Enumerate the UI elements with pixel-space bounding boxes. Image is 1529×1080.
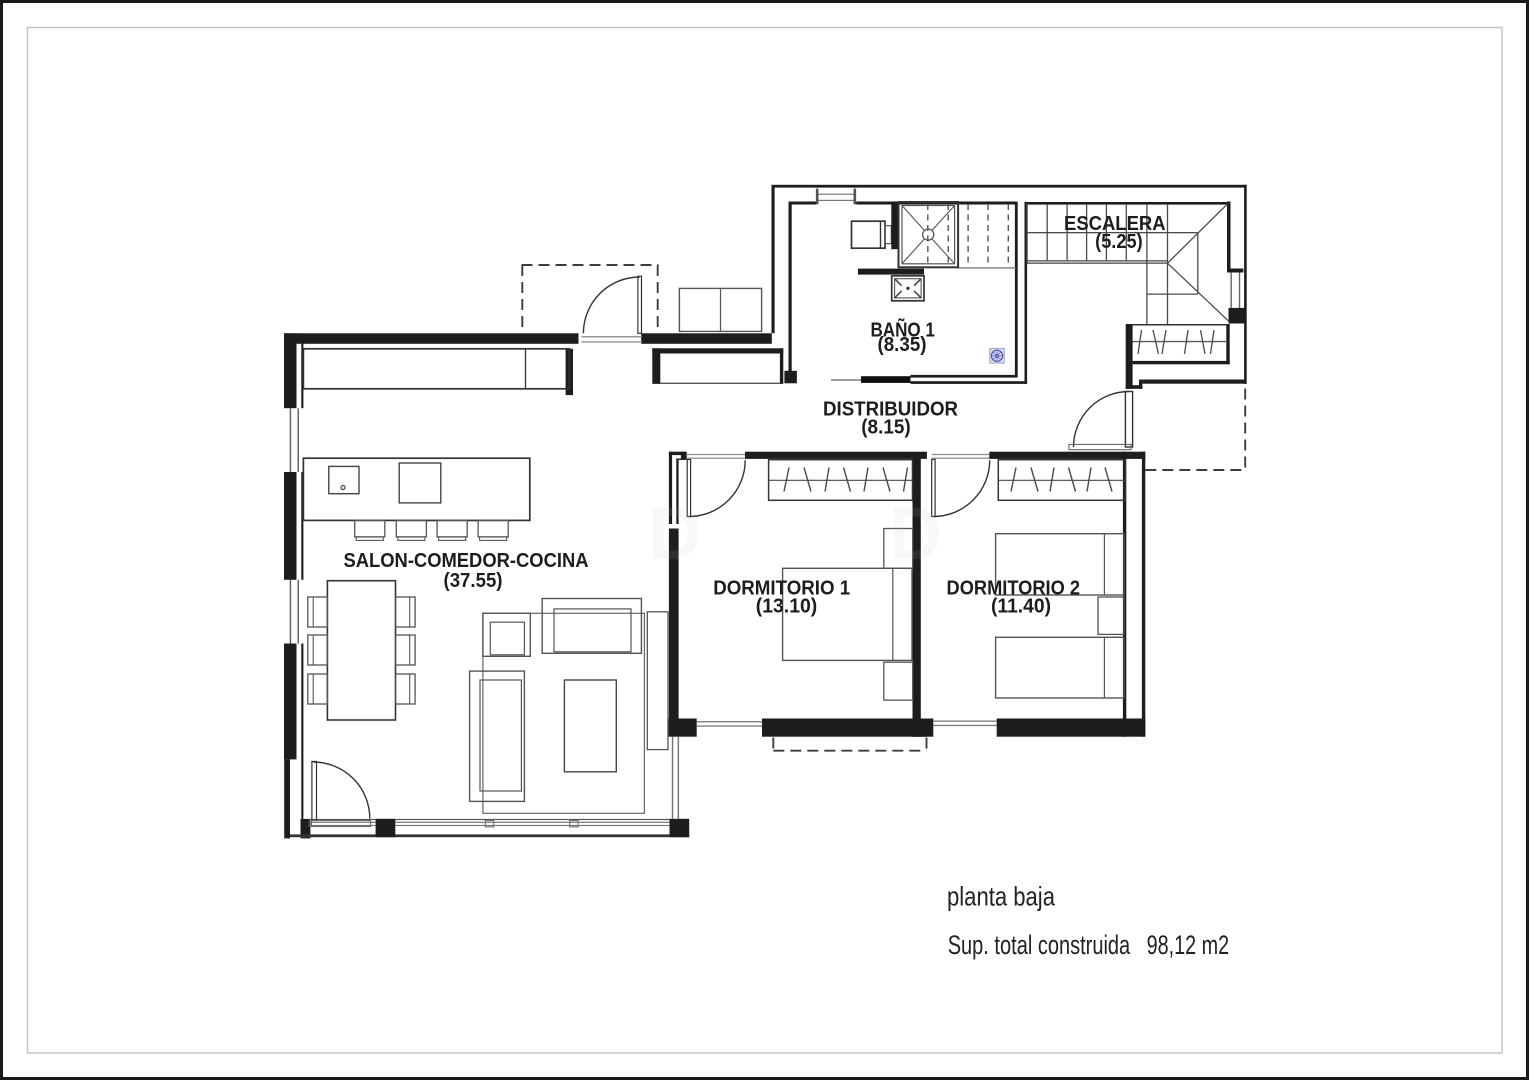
svg-text:(8.15): (8.15) — [861, 417, 911, 439]
svg-text:D: D — [648, 492, 701, 575]
svg-text:Sup. total construida: Sup. total construida — [948, 930, 1131, 960]
svg-text:SALON-COMEDOR-COCINA: SALON-COMEDOR-COCINA — [344, 550, 589, 572]
svg-text:D: D — [889, 492, 942, 575]
svg-text:(13.10): (13.10) — [756, 596, 818, 618]
svg-text:98,12 m2: 98,12 m2 — [1147, 930, 1230, 960]
svg-text:(5.25): (5.25) — [1095, 231, 1143, 253]
svg-text:planta baja: planta baja — [947, 882, 1056, 912]
svg-text:(8.35): (8.35) — [878, 334, 927, 356]
svg-text:(37.55): (37.55) — [444, 570, 503, 592]
svg-text:(11.40): (11.40) — [991, 596, 1051, 618]
